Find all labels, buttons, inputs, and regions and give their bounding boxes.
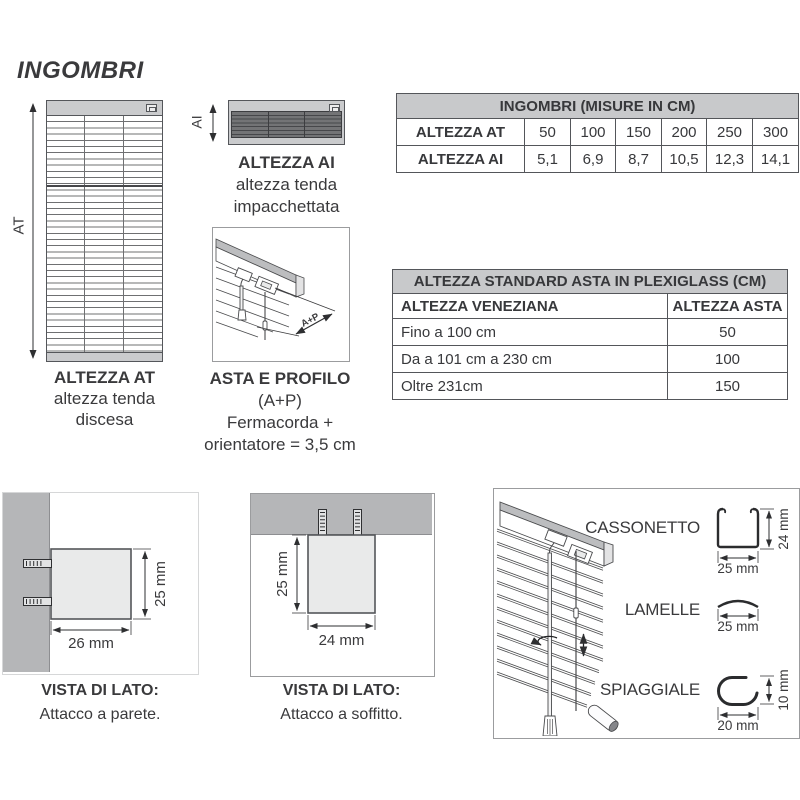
ai-packed-slats <box>231 111 342 138</box>
table-row: Fino a 100 cm 50 <box>393 319 788 346</box>
ceiling-mount-height-dim: 25 mm <box>274 551 291 597</box>
spiaggiale-height-dim: 10 mm <box>776 669 791 710</box>
table-row: ALTEZZA AI 5,1 6,9 8,7 10,5 12,3 14,1 <box>397 146 799 173</box>
at-caption: ALTEZZA AT altezza tenda discesa <box>28 367 181 430</box>
bottomrail <box>586 703 620 733</box>
lamelle-width-dim: 25 mm <box>717 619 758 634</box>
ai-caption: ALTEZZA AI altezza tenda impacchettata <box>208 152 365 218</box>
spiaggiale-profile-icon <box>719 678 758 705</box>
ai-dimension-arrow <box>205 100 221 146</box>
wall-mount-height-dim: 25 mm <box>152 561 169 607</box>
brand-chip-icon <box>146 104 157 112</box>
at-blind-bottomrail <box>46 352 163 362</box>
table-row: Da a 101 cm a 230 cm 100 <box>393 346 788 373</box>
asta-caption: ASTA E PROFILO (A+P) Fermacorda + orient… <box>192 368 368 456</box>
lift-cord-icon <box>84 116 85 352</box>
table-asta-title: ALTEZZA STANDARD ASTA IN PLEXIGLASS (CM) <box>393 270 788 294</box>
ai-caption-title: ALTEZZA AI <box>208 152 365 174</box>
label-cassonetto: CASSONETTO <box>585 518 700 538</box>
spiaggiale-width-dim: 20 mm <box>717 718 758 733</box>
table-asta-plexiglass: ALTEZZA STANDARD ASTA IN PLEXIGLASS (CM)… <box>392 269 788 400</box>
at-blind-drawing <box>46 100 163 362</box>
headrail-cross-section <box>308 535 375 613</box>
table-ingombri: INGOMBRI (MISURE IN CM) ALTEZZA AT 50 10… <box>396 93 799 173</box>
cassonetto-width-dim: 25 mm <box>717 561 758 576</box>
cassonetto-height-dim: 24 mm <box>776 508 791 549</box>
lift-cord-icon <box>268 112 270 137</box>
wall-mount-width-dim: 26 mm <box>68 635 114 652</box>
page-title: INGOMBRI <box>17 57 144 85</box>
screw-icon <box>319 510 327 536</box>
ceiling-mount-drawing: 25 mm 24 mm <box>251 494 432 674</box>
at-blind-slats <box>46 116 163 352</box>
cord-connector <box>574 608 578 618</box>
label-spiaggiale: SPIAGGIALE <box>600 680 700 700</box>
wall-mount-figure: 25 mm 26 mm <box>2 492 199 675</box>
table-row: ALTEZZA AT 50 100 150 200 250 300 <box>397 119 799 146</box>
brand-chip-icon <box>329 104 340 112</box>
components-figure: 24 mm 25 mm 25 mm 10 mm 20 mm CASSONETTO… <box>493 488 800 739</box>
asta-arrow-label: A+P <box>299 311 321 330</box>
lamelle-profile-icon <box>718 601 758 607</box>
asta-isometric-drawing: A+P <box>213 228 347 359</box>
label-lamelle: LAMELLE <box>625 600 700 620</box>
at-arrow-label: AT <box>11 216 28 234</box>
table-row: Oltre 231cm 150 <box>393 373 788 400</box>
wall-mount-drawing: 25 mm 26 mm <box>3 493 196 672</box>
at-caption-title: ALTEZZA AT <box>28 367 181 388</box>
headrail-end-cap <box>604 542 613 566</box>
screw-icon <box>354 510 362 536</box>
slat-divider-line <box>47 185 162 187</box>
wall-mount-caption: VISTA DI LATO: Attacco a parete. <box>0 679 200 727</box>
tilt-wand <box>548 553 552 716</box>
lift-cord-icon <box>304 112 306 137</box>
ceiling-mount-caption: VISTA DI LATO: Attacco a soffitto. <box>248 679 435 727</box>
asta-profile-figure: A+P <box>212 227 350 362</box>
wall <box>3 493 49 672</box>
table-column-headers: ALTEZZA VENEZIANA ALTEZZA ASTA <box>393 294 788 319</box>
ceiling-mount-figure: 25 mm 24 mm <box>250 493 435 677</box>
screw-icon <box>24 560 52 568</box>
ceiling-mount-width-dim: 24 mm <box>319 632 365 649</box>
datasheet-page: INGOMBRI AT ALTEZZA AT altezza tenda dis… <box>0 0 800 800</box>
asta-caption-title: ASTA E PROFILO <box>192 368 368 390</box>
ai-blind-drawing <box>228 100 345 145</box>
at-blind-headrail <box>46 100 163 116</box>
headrail-cross-section <box>51 549 131 619</box>
ceiling <box>251 494 432 534</box>
lift-cord-icon <box>123 116 124 352</box>
cassonetto-profile-icon <box>718 509 758 547</box>
headrail-end-cap <box>296 275 304 297</box>
screw-icon <box>24 598 52 606</box>
table-ingombri-title: INGOMBRI (MISURE IN CM) <box>397 94 799 119</box>
ai-arrow-label: AI <box>189 115 205 128</box>
